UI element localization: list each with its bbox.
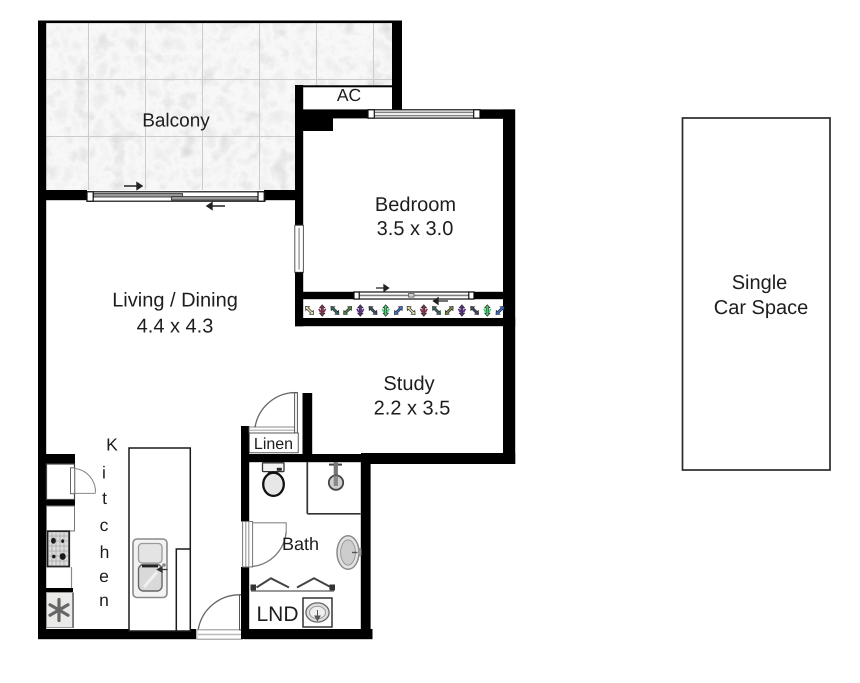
svg-text:t: t xyxy=(102,488,107,508)
svg-text:AC: AC xyxy=(337,85,361,105)
svg-text:K: K xyxy=(106,435,118,455)
svg-text:Living / Dining: Living / Dining xyxy=(112,290,238,312)
svg-text:Car Space: Car Space xyxy=(714,297,809,319)
svg-text:Bath: Bath xyxy=(282,534,319,554)
svg-text:Bedroom: Bedroom xyxy=(375,194,456,216)
svg-text:2.2 x 3.5: 2.2 x 3.5 xyxy=(374,398,451,420)
svg-text:Single: Single xyxy=(732,272,788,294)
svg-text:n: n xyxy=(99,590,109,610)
svg-text:Balcony: Balcony xyxy=(142,111,210,132)
svg-text:3.5 x 3.0: 3.5 x 3.0 xyxy=(377,218,454,240)
svg-text:h: h xyxy=(100,542,110,562)
svg-text:c: c xyxy=(100,515,109,535)
svg-text:4.4 x 4.3: 4.4 x 4.3 xyxy=(137,316,214,338)
svg-text:Study: Study xyxy=(383,373,434,395)
svg-text:Linen: Linen xyxy=(254,436,293,453)
svg-text:LND: LND xyxy=(256,603,298,626)
svg-text:i: i xyxy=(102,463,106,483)
svg-text:e: e xyxy=(99,566,109,586)
